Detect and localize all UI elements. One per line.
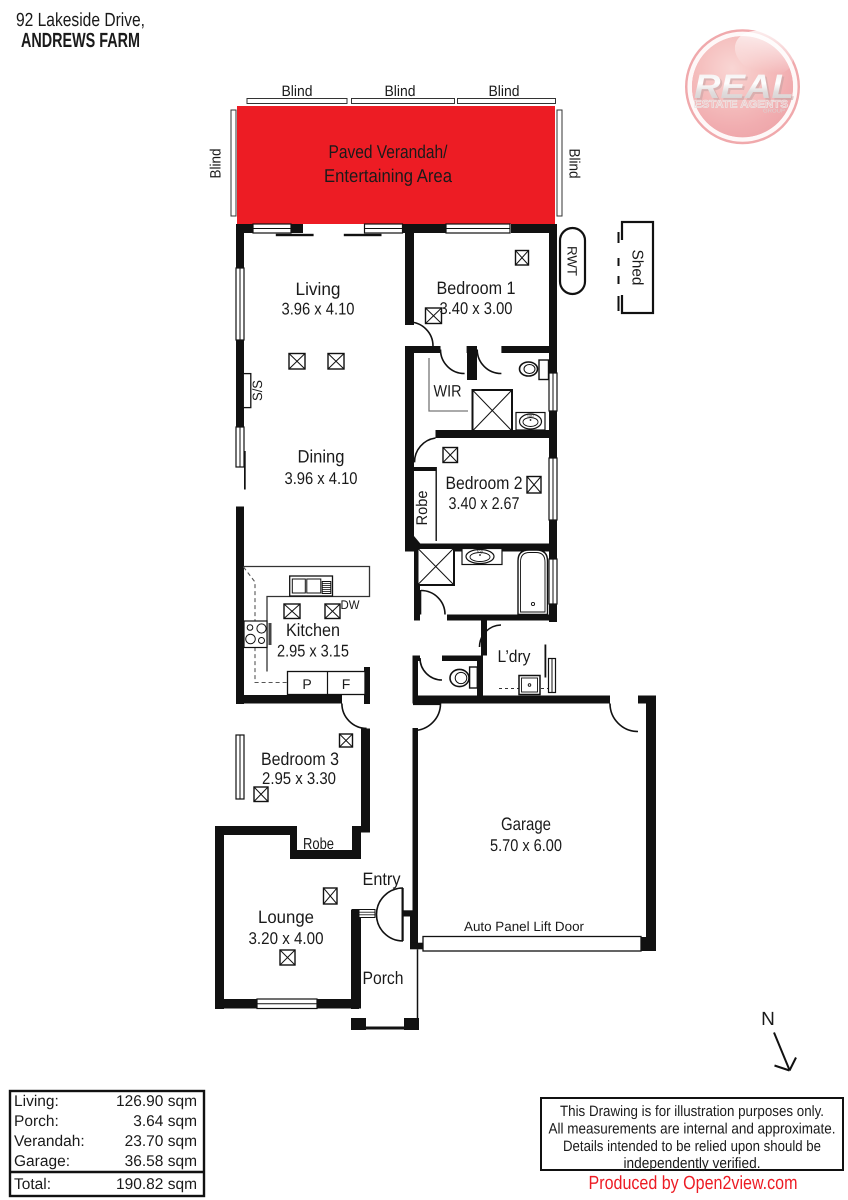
svg-text:Kitchen: Kitchen [286, 620, 340, 640]
svg-text:ANDREWS FARM: ANDREWS FARM [21, 29, 140, 52]
svg-text:Garage:: Garage: [14, 1153, 70, 1170]
svg-text:Blind: Blind [566, 149, 583, 179]
svg-text:Bedroom 1: Bedroom 1 [437, 278, 516, 298]
svg-text:5.70 x 6.00: 5.70 x 6.00 [490, 836, 562, 855]
svg-text:Robe: Robe [303, 836, 334, 853]
svg-text:Blind: Blind [385, 83, 416, 100]
svg-text:Details intended to be relied: Details intended to be relied upon shoul… [563, 1138, 821, 1155]
svg-text:92 Lakeside Drive,: 92 Lakeside Drive, [16, 10, 145, 31]
svg-text:Garage: Garage [501, 814, 551, 834]
svg-text:GROUP: GROUP [763, 109, 785, 115]
svg-text:top: top [477, 549, 484, 554]
svg-text:All measurements are internal: All measurements are internal and approx… [549, 1121, 836, 1138]
svg-text:Verandah:: Verandah: [14, 1133, 85, 1150]
svg-text:S/S: S/S [250, 380, 265, 401]
svg-text:Produced by Open2view.com: Produced by Open2view.com [589, 1173, 798, 1194]
svg-text:Entry: Entry [363, 869, 401, 889]
svg-text:3.20 x 4.00: 3.20 x 4.00 [249, 929, 324, 948]
svg-text:Robe: Robe [414, 491, 431, 526]
svg-text:Shed: Shed [629, 250, 646, 286]
svg-text:This Drawing is for illustrati: This Drawing is for illustration purpose… [560, 1103, 824, 1120]
svg-text:Bedroom 3: Bedroom 3 [261, 749, 339, 769]
svg-text:Living: Living [296, 279, 341, 299]
svg-text:Total:: Total: [14, 1176, 51, 1193]
svg-text:top: top [527, 413, 534, 418]
svg-text:3.40 x 2.67: 3.40 x 2.67 [449, 494, 520, 513]
svg-text:Blind: Blind [282, 83, 313, 100]
svg-text:Blind: Blind [489, 83, 520, 100]
svg-text:RWT: RWT [565, 246, 580, 276]
svg-text:Porch:: Porch: [14, 1113, 59, 1130]
svg-text:2.95 x 3.15: 2.95 x 3.15 [277, 642, 349, 661]
svg-text:P: P [302, 676, 311, 692]
svg-text:Living:: Living: [14, 1093, 59, 1110]
svg-text:36.58 sqm: 36.58 sqm [125, 1153, 197, 1170]
svg-text:126.90 sqm: 126.90 sqm [116, 1093, 197, 1110]
svg-text:Lounge: Lounge [258, 907, 314, 927]
svg-text:N: N [761, 1009, 775, 1030]
svg-text:Dining: Dining [298, 447, 345, 467]
svg-text:Blind: Blind [208, 149, 225, 179]
svg-text:DW: DW [341, 598, 360, 612]
svg-text:3.40 x 3.00: 3.40 x 3.00 [440, 299, 513, 318]
svg-text:F: F [342, 676, 351, 692]
svg-text:23.70 sqm: 23.70 sqm [125, 1133, 197, 1150]
svg-text:Porch: Porch [363, 968, 404, 988]
svg-text:independently verified.: independently verified. [624, 1155, 761, 1172]
svg-text:3.96 x 4.10: 3.96 x 4.10 [285, 469, 358, 488]
svg-text:Entertaining Area: Entertaining Area [324, 165, 453, 186]
svg-text:WIR: WIR [434, 383, 462, 401]
svg-text:L’dry: L’dry [498, 647, 531, 666]
svg-text:2.95 x 3.30: 2.95 x 3.30 [262, 769, 336, 788]
svg-text:Auto Panel Lift Door: Auto Panel Lift Door [464, 919, 584, 934]
svg-text:Bedroom 2: Bedroom 2 [446, 473, 523, 493]
svg-text:3.96 x 4.10: 3.96 x 4.10 [282, 300, 355, 319]
svg-text:3.64 sqm: 3.64 sqm [133, 1113, 197, 1130]
svg-text:Paved Verandah/: Paved Verandah/ [329, 141, 449, 162]
svg-text:190.82 sqm: 190.82 sqm [116, 1176, 197, 1193]
